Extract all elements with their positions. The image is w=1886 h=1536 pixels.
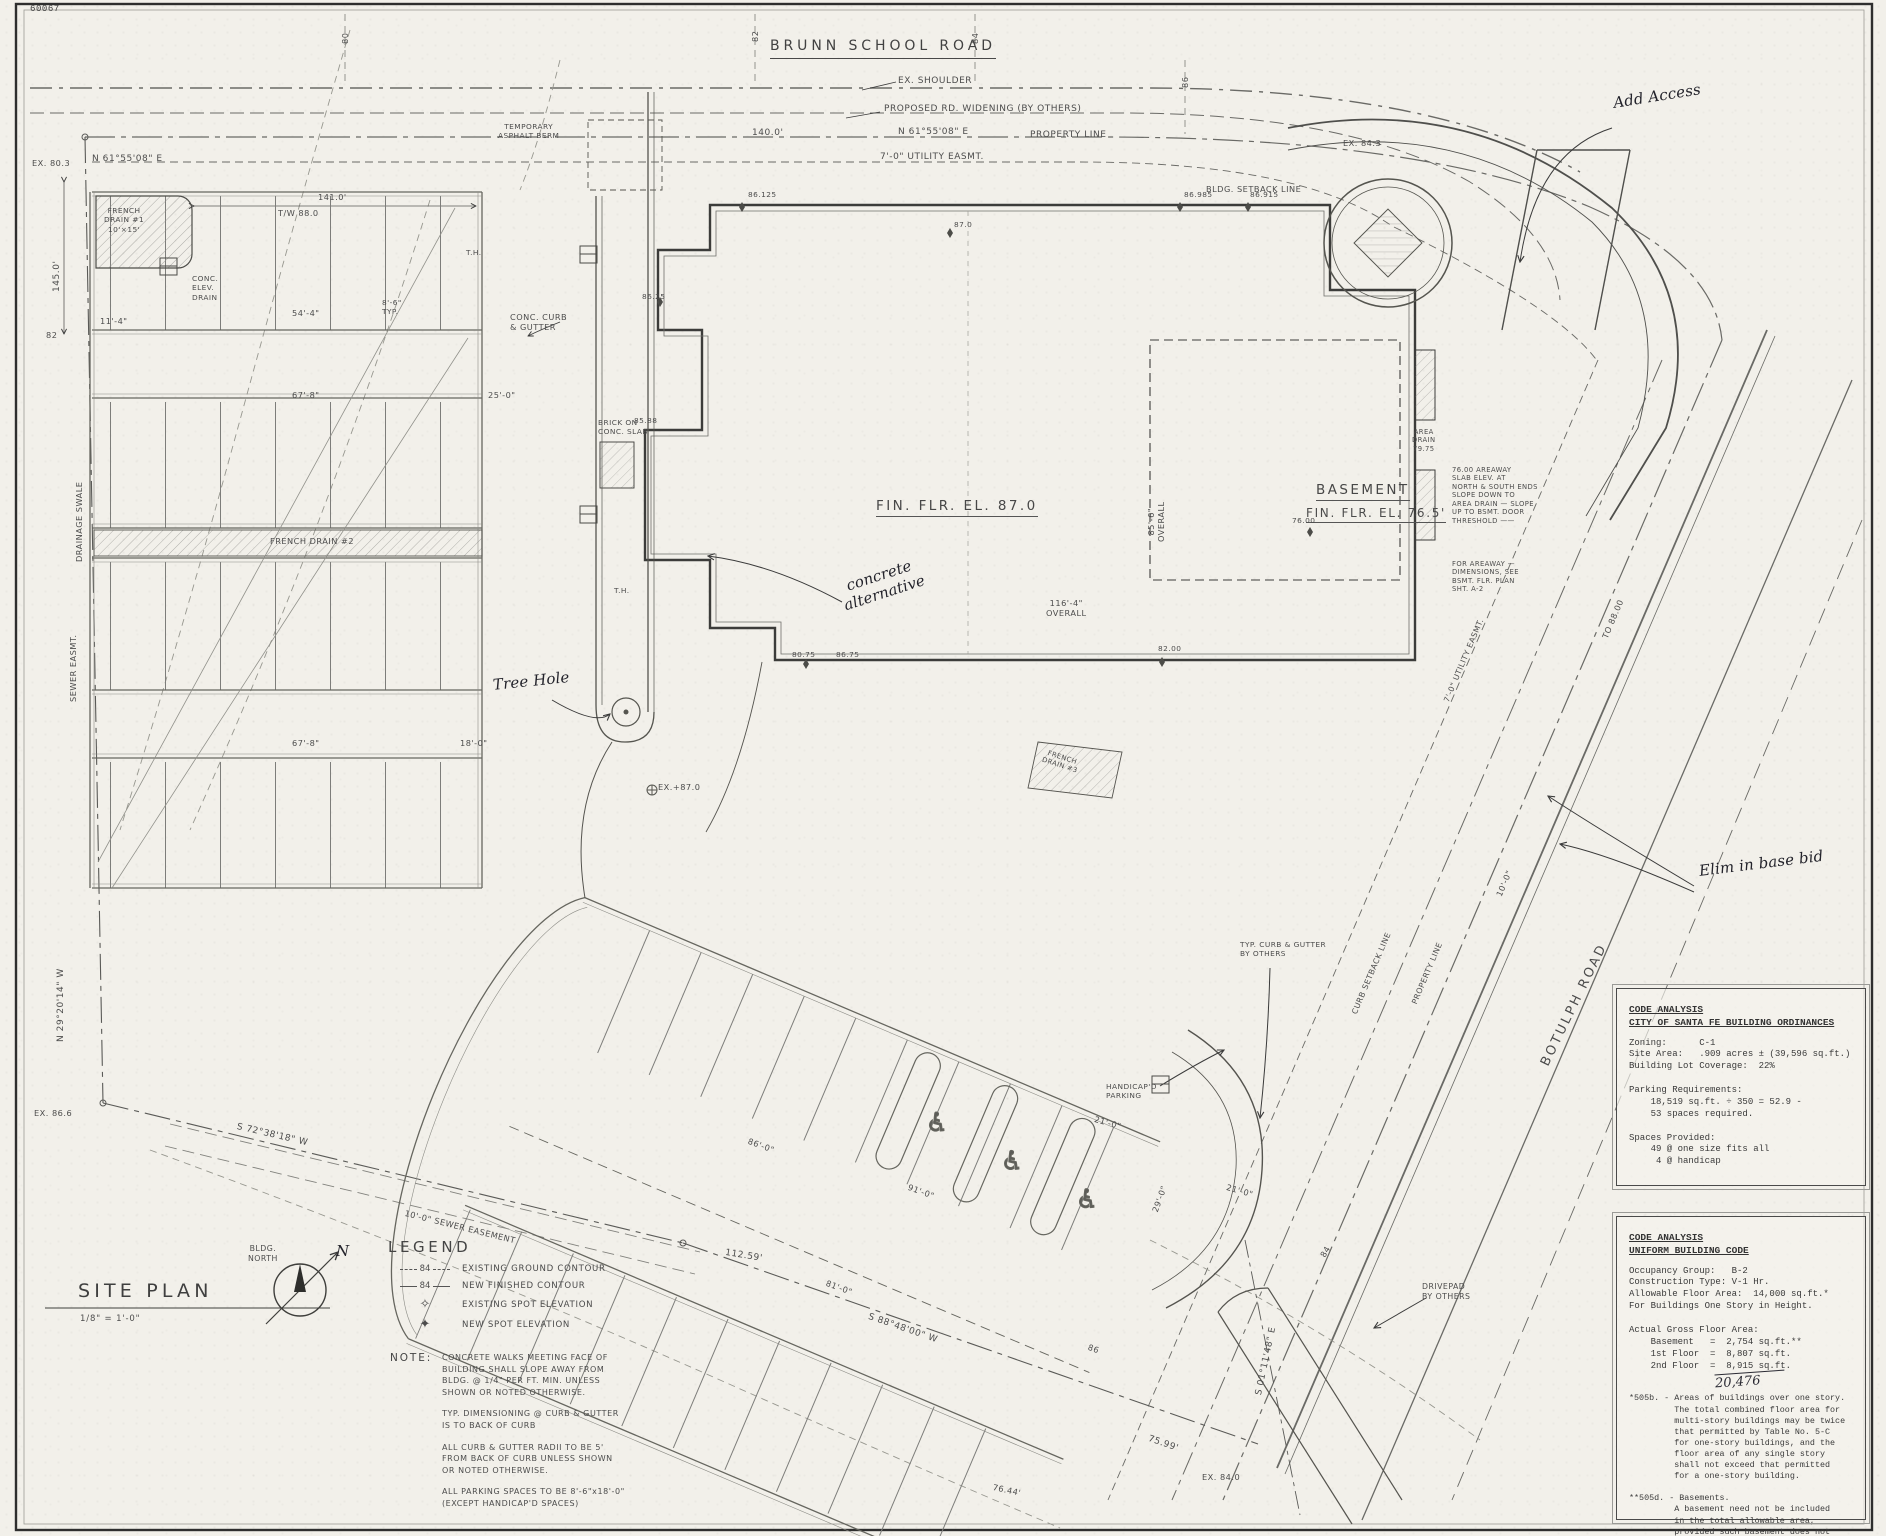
page-title: SITE PLAN (78, 1280, 213, 1304)
dim-18-0: 18'-0" (460, 738, 488, 748)
northeast-curb-curves (1288, 119, 1678, 520)
spot-ex-840: EX. 84.0 (1202, 1472, 1240, 1482)
dim-140: 140.0' (752, 128, 783, 139)
spot-ex-843: EX. 84.3 (1343, 138, 1381, 148)
contour-86-tick: 86 (1180, 77, 1190, 88)
label-temp-asphalt-berm: TEMPORARY ASPHALT BERM (498, 122, 559, 141)
spot-86915: 86.915 (1250, 190, 1279, 199)
spot-8625: 86.25 (642, 292, 665, 301)
label-utility-easement-top: 7'-0" UTILITY EASMT. (880, 152, 984, 163)
compass-bldg-north-label: BLDG. NORTH (248, 1244, 278, 1263)
legend-item-new-spot: ✦ NEW SPOT ELEVATION (388, 1318, 606, 1331)
spot-8675: 86.75 (836, 650, 859, 659)
contour-82-tick: 82 (750, 31, 760, 42)
label-fin-flr: FIN. FLR. EL. 87.0 (876, 498, 1038, 517)
label-basement-ffe: FIN. FLR. EL. 76.5' (1306, 506, 1446, 523)
label-basement: BASEMENT (1316, 482, 1410, 501)
general-notes: NOTE: CONCRETE WALKS MEETING FACE OF BUI… (390, 1352, 690, 1520)
label-ex-shoulder: EX. SHOULDER (898, 76, 972, 87)
label-sewer-easement: SEWER EASMT. (68, 634, 78, 702)
dim-overall-116: 116'-4" OVERALL (1046, 598, 1087, 619)
label-conc-curb-gutter: CONC. CURB & GUTTER (510, 312, 567, 333)
label-th: T.H. (466, 248, 482, 257)
note-paragraph: ALL CURB & GUTTER RADII TO BE 5' FROM BA… (442, 1442, 690, 1477)
spot-7600: 76.00 (1292, 516, 1315, 525)
code-city-subheading: CITY OF SANTA FE BUILDING ORDINANCES (1629, 1016, 1855, 1029)
label-conc-elev-drain: CONC. ELEV. DRAIN (192, 274, 218, 302)
existing-contour-icon: 84 (388, 1264, 462, 1274)
site-plan-sheet: ♿ ♿ ♿ (0, 0, 1886, 1536)
bearing-top: N 61°55'08" E (898, 127, 969, 138)
code-analysis-ubc-box: CODE ANALYSIS UNIFORM BUILDING CODE Occu… (1616, 1216, 1866, 1520)
label-th-2: T.H. (614, 586, 630, 595)
label-tw-880: T/W 88.0 (278, 208, 319, 218)
legend: LEGEND 84 EXISTING GROUND CONTOUR 84 NEW… (388, 1238, 606, 1338)
note-paragraph: ALL PARKING SPACES TO BE 8'-6"x18'-0" (E… (442, 1486, 690, 1509)
new-contour-icon: 84 (388, 1281, 462, 1291)
top-contour-ticks (345, 14, 1185, 134)
spot-86985: 86.985 (1184, 190, 1213, 199)
legend-item-existing-contour: 84 EXISTING GROUND CONTOUR (388, 1264, 606, 1274)
label-french-drain-1: FRENCH DRAIN #1 10'×15' (104, 206, 144, 234)
bearing-left-bottom: N 29°20'14" W (56, 968, 67, 1042)
bearing-left-top: N 61°55'08" E (92, 154, 163, 165)
label-proposed-widening: PROPOSED RD. WIDENING (BY OTHERS) (884, 104, 1081, 115)
sheet-number: 60067 (30, 4, 60, 16)
road-name-brunn: BRUNN SCHOOL ROAD (770, 38, 996, 59)
code-analysis-city-box: CODE ANALYSIS CITY OF SANTA FE BUILDING … (1616, 988, 1866, 1186)
label-french-drain-2: FRENCH DRAIN #2 (270, 536, 354, 546)
spot-8075: 80.75 (792, 650, 815, 659)
dim-67-8-b: 67'-8" (292, 738, 320, 748)
code-ubc-body-1: Occupancy Group: B-2 Construction Type: … (1629, 1266, 1855, 1373)
spot-ex-803: EX. 80.3 (32, 158, 70, 168)
dim-54-4: 54'-4" (292, 308, 320, 318)
plan-scale: 1/8" = 1'-0" (80, 1314, 140, 1325)
spot-ex-866: EX. 86.6 (34, 1108, 72, 1118)
notes-heading: NOTE: (390, 1352, 432, 1364)
note-areaway-dims: FOR AREAWAY — DIMENSIONS, SEE BSMT. FLR.… (1452, 560, 1519, 594)
contour-80-tick: 80 (340, 33, 350, 44)
dim-67-8: 67'-8" (292, 390, 320, 400)
circular-drive (1324, 179, 1452, 307)
compass-north-label: N (336, 1242, 349, 1260)
legend-title: LEGEND (388, 1238, 606, 1256)
contour-84-tick: 84 (970, 33, 980, 44)
label-area-drain: AREA DRAIN 79.75 (1412, 428, 1435, 453)
dim-25-0: 25'-0" (488, 390, 516, 400)
code-city-heading: CODE ANALYSIS (1629, 1003, 1855, 1016)
new-spot-icon: ✦ (388, 1318, 462, 1331)
existing-spot-icon: ✧ (388, 1298, 462, 1311)
spot-8200: 82.00 (1158, 644, 1181, 653)
legend-item-existing-spot: ✧ EXISTING SPOT ELEVATION (388, 1298, 606, 1311)
plan-linework: ♿ ♿ ♿ (0, 0, 1886, 1536)
code-ubc-subheading: UNIFORM BUILDING CODE (1629, 1244, 1855, 1257)
dim-overall-85: 85'-6" OVERALL (1146, 501, 1167, 542)
dim-145: 145.0' (52, 261, 63, 292)
spot-8588: 85.88 (634, 416, 657, 425)
note-areaway: 76.00 AREAWAY SLAB ELEV. AT NORTH & SOUT… (1452, 466, 1538, 525)
code-city-body: Zoning: C-1 Site Area: .909 acres ± (39,… (1629, 1038, 1855, 1169)
note-paragraph: TYP. DIMENSIONING @ CURB & GUTTER IS TO … (442, 1408, 690, 1431)
contour-82-left: 82 (46, 330, 57, 340)
building-outline (600, 205, 1435, 660)
spot-ex-870: EX.+87.0 (658, 782, 700, 792)
code-ubc-body-2: *505b. - Areas of buildings over one sto… (1629, 1393, 1855, 1536)
code-ubc-heading: CODE ANALYSIS (1629, 1231, 1855, 1244)
legend-item-new-contour: 84 NEW FINISHED CONTOUR (388, 1281, 606, 1291)
dim-8-6-typ: 8'-6" TYP. (382, 298, 402, 317)
label-drivepad: DRIVEPAD BY OTHERS (1422, 1282, 1470, 1301)
spot-870: 87.0 (954, 220, 972, 229)
dim-141: 141.0' (318, 192, 347, 202)
label-typ-curb-others: TYP. CURB & GUTTER BY OTHERS (1240, 940, 1326, 959)
label-drainage-swale: DRAINAGE SWALE (74, 482, 84, 562)
note-paragraph: CONCRETE WALKS MEETING FACE OF BUILDING … (442, 1352, 690, 1398)
dim-11-4: 11'-4" (100, 316, 128, 326)
spot-86125: 86.125 (748, 190, 777, 199)
label-property-line-top: PROPERTY LINE (1030, 130, 1106, 141)
spot-elevation-markers (657, 202, 1313, 669)
label-handicap-parking: HANDICAP'D PARKING (1106, 1082, 1157, 1101)
handwritten-total: 20,476 (1714, 1370, 1785, 1392)
